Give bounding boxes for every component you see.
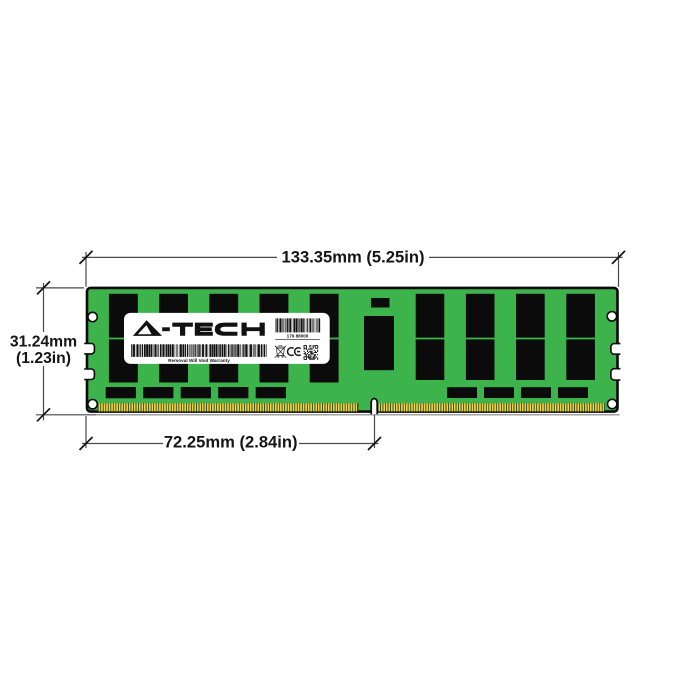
svg-text:72.25mm (2.84in): 72.25mm (2.84in) [164,432,298,451]
svg-text:(1.23in): (1.23in) [16,350,71,367]
svg-text:31.24mm: 31.24mm [10,334,77,351]
svg-text:133.35mm (5.25in): 133.35mm (5.25in) [282,247,425,266]
svg-text:179 88000: 179 88000 [287,334,309,339]
svg-text:Removal Will Void Warranty: Removal Will Void Warranty [168,358,230,363]
